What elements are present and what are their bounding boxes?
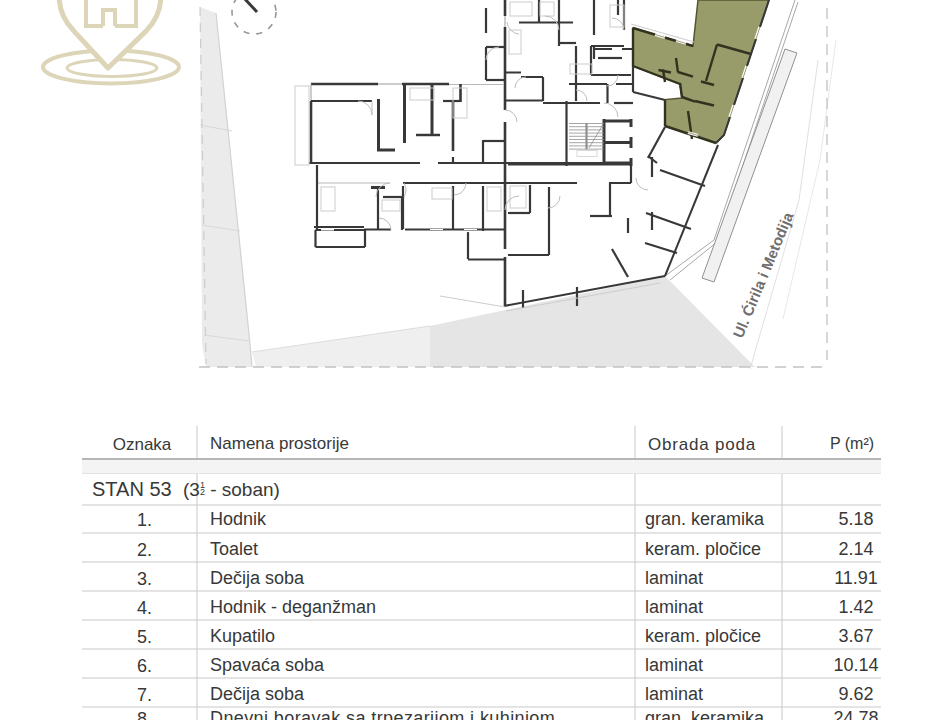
svg-text:Ul. Ćirila i Metodija: Ul. Ćirila i Metodija — [729, 209, 796, 340]
